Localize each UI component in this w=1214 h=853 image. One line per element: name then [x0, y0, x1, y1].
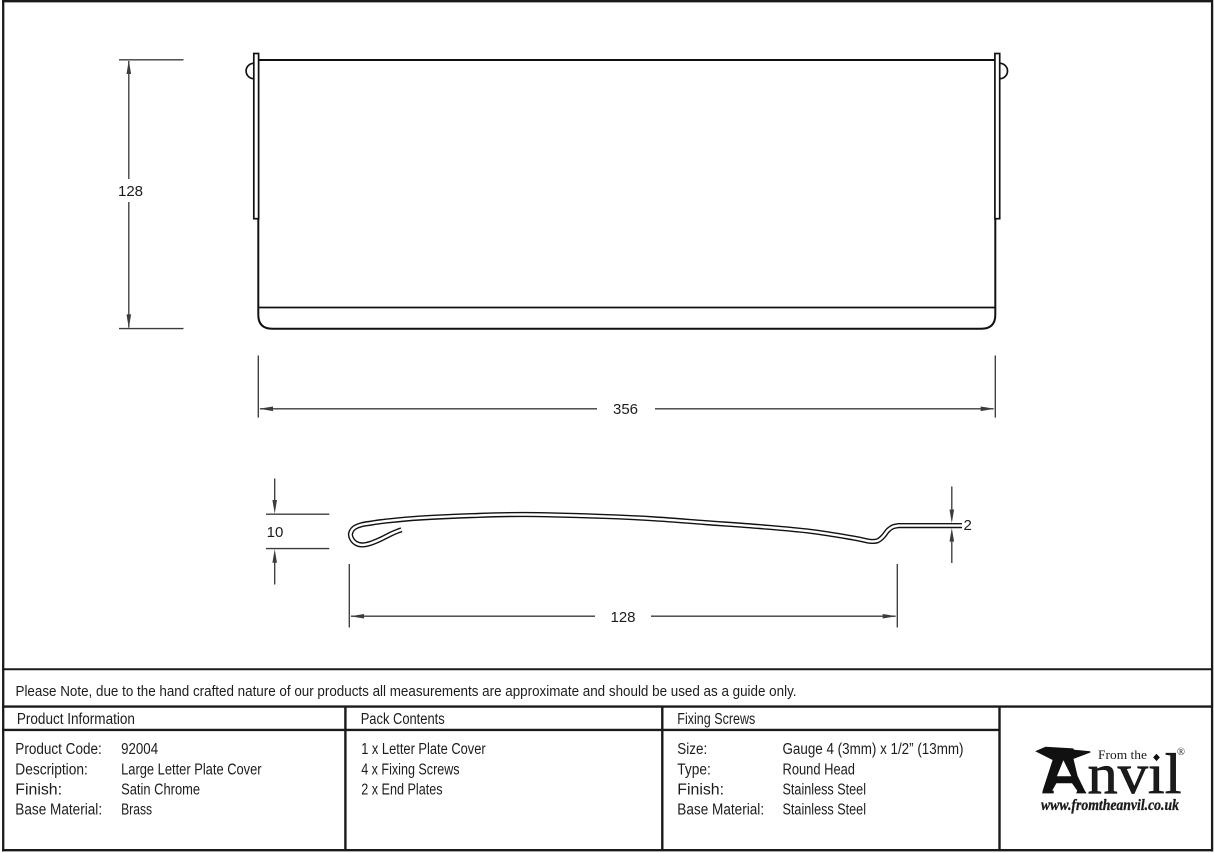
svg-text:Fixing Screws: Fixing Screws — [677, 711, 755, 728]
svg-text:128: 128 — [610, 609, 635, 626]
svg-text:Product Information: Product Information — [17, 711, 135, 728]
svg-text:Pack Contents: Pack Contents — [361, 711, 445, 728]
svg-text:Finish:: Finish: — [15, 781, 62, 798]
svg-text:92004: 92004 — [121, 741, 158, 758]
svg-text:www.fromtheanvil.co.uk: www.fromtheanvil.co.uk — [1041, 797, 1179, 814]
svg-text:Stainless Steel: Stainless Steel — [783, 781, 867, 798]
svg-text:356: 356 — [613, 401, 638, 418]
svg-text:2: 2 — [964, 517, 972, 534]
svg-text:Product Code:: Product Code: — [15, 741, 102, 758]
svg-text:Stainless Steel: Stainless Steel — [783, 802, 867, 819]
svg-text:1 x Letter Plate Cover: 1 x Letter Plate Cover — [361, 741, 486, 758]
svg-text:Large Letter Plate Cover: Large Letter Plate Cover — [121, 761, 262, 778]
svg-text:Please Note, due to the hand c: Please Note, due to the hand crafted nat… — [16, 684, 797, 700]
svg-text:Gauge 4 (3mm) x 1/2” (13mm): Gauge 4 (3mm) x 1/2” (13mm) — [783, 741, 964, 758]
svg-text:Size:: Size: — [677, 741, 707, 758]
svg-text:®: ® — [1177, 747, 1185, 758]
svg-text:Base Material:: Base Material: — [677, 802, 764, 819]
svg-text:128: 128 — [118, 183, 143, 200]
svg-text:Description:: Description: — [15, 761, 88, 778]
svg-text:4 x Fixing Screws: 4 x Fixing Screws — [361, 761, 460, 778]
svg-text:Satin Chrome: Satin Chrome — [121, 781, 200, 798]
svg-text:Type:: Type: — [677, 761, 711, 778]
svg-text:Brass: Brass — [121, 802, 152, 819]
svg-text:Round Head: Round Head — [783, 761, 856, 778]
svg-text:2 x End Plates: 2 x End Plates — [361, 781, 443, 798]
svg-text:Finish:: Finish: — [677, 781, 724, 798]
svg-text:Base Material:: Base Material: — [15, 802, 102, 819]
svg-text:10: 10 — [267, 524, 284, 541]
